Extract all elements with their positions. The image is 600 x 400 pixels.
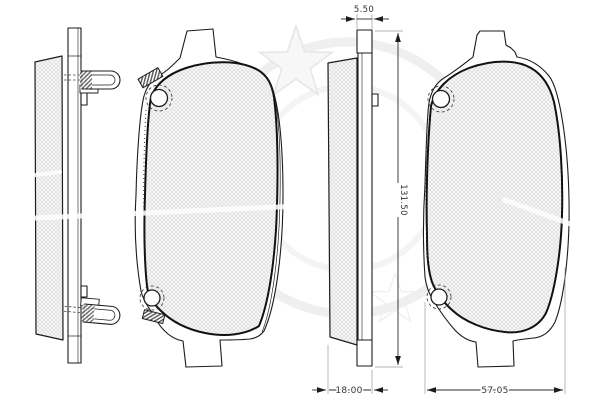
dimension-pad-total-thickness: 18.00 — [312, 345, 388, 396]
brake-pad-technical-drawing: 5.50 131.50 18.00 57.05 — [0, 0, 600, 400]
pad1-side-friction-block — [35, 56, 63, 340]
dimension-label-pad-bottom-width: 57.05 — [481, 386, 508, 396]
dimension-backplate-thickness: 5.50 — [341, 5, 389, 29]
pad2-side-lug — [372, 94, 378, 106]
dimension-label-pad-height: 131.50 — [398, 184, 408, 216]
dimension-label-pad-total-thickness: 18.00 — [335, 386, 362, 396]
pad2-front-view — [424, 31, 570, 367]
pad1-side-view — [35, 28, 121, 363]
pad1-side-lug-bottom — [81, 286, 87, 297]
pad2-side-view — [328, 30, 378, 366]
pad1-side-lug-top — [81, 92, 87, 105]
pad1-front-view — [135, 29, 283, 367]
pad2-side-friction-block — [328, 58, 357, 345]
dimension-label-backplate-thickness: 5.50 — [354, 5, 374, 15]
